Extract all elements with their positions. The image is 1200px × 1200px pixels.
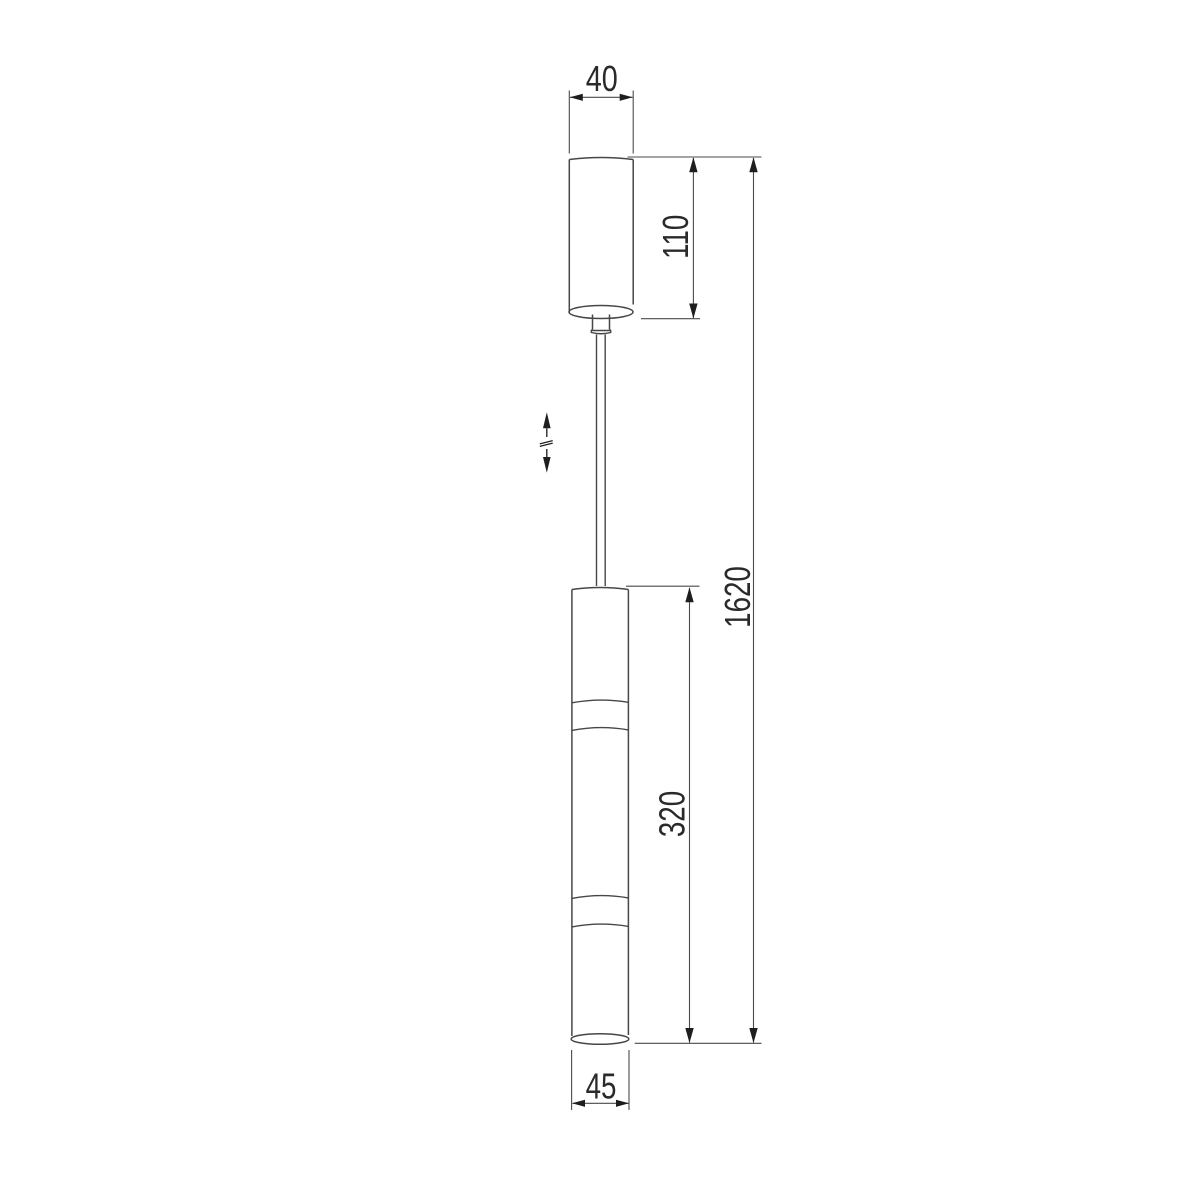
svg-text:1620: 1620	[718, 566, 758, 628]
svg-text:320: 320	[652, 791, 692, 837]
svg-text:40: 40	[586, 58, 618, 99]
svg-text:45: 45	[586, 1066, 617, 1106]
svg-text:110: 110	[656, 215, 696, 259]
